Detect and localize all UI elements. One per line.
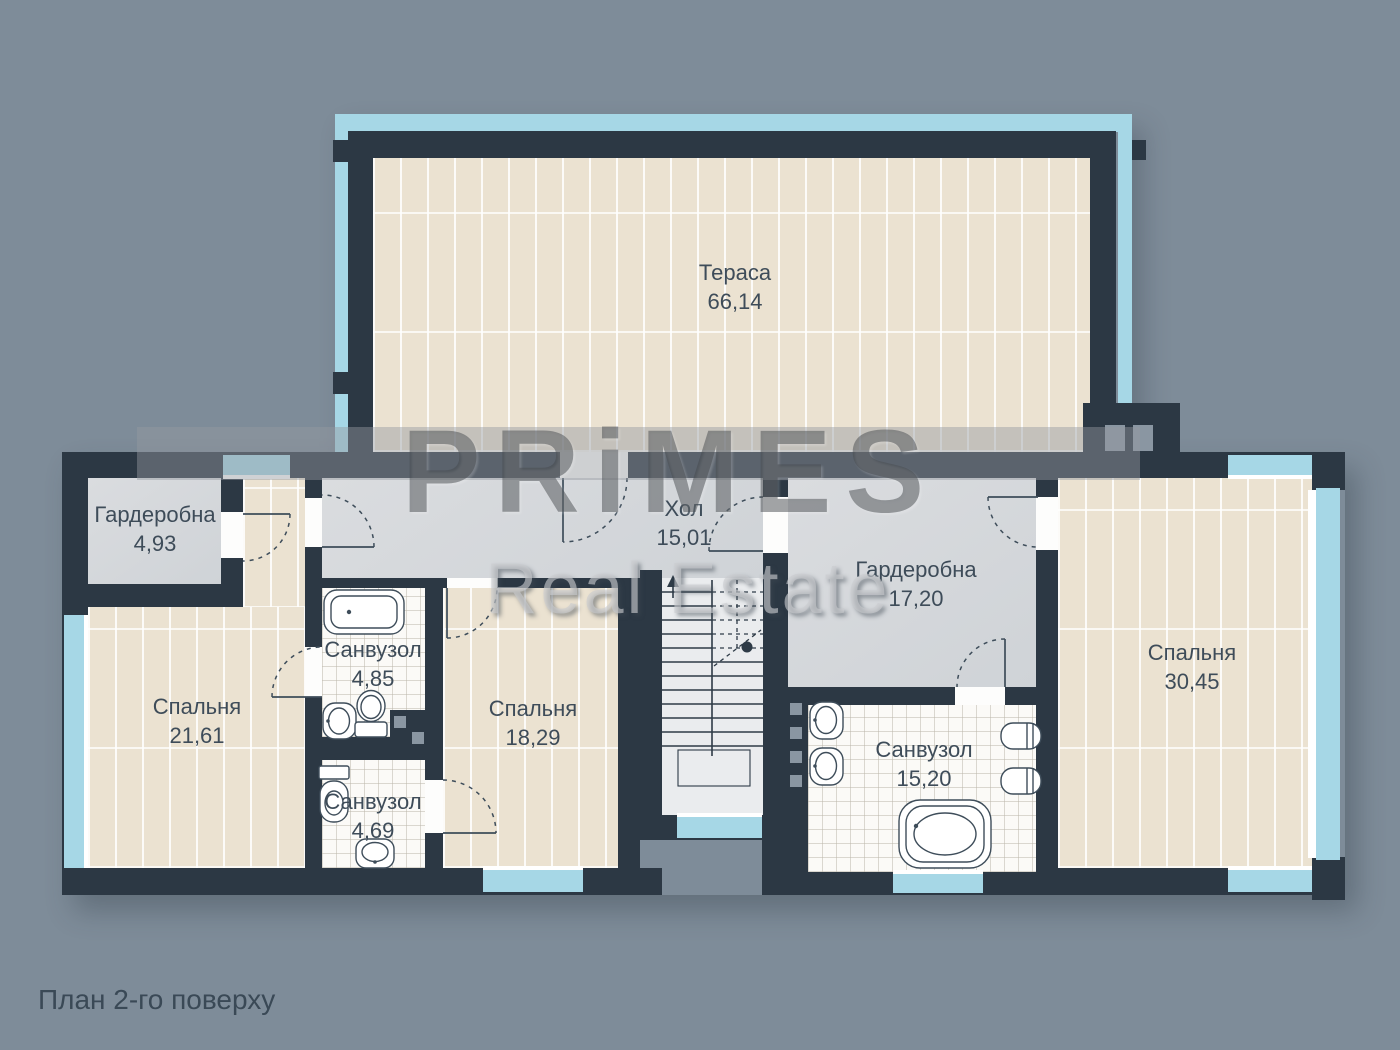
room-name: Спальня [1148, 638, 1236, 667]
room-area: 4,85 [324, 664, 421, 693]
room-name: Санвузол [324, 787, 421, 816]
stair-newel-dot [742, 642, 753, 653]
toilet [355, 691, 387, 738]
bathtub-small [324, 590, 404, 634]
room-area: 30,45 [1148, 667, 1236, 696]
bathtub-large [899, 800, 991, 868]
room-label-bath-top: Санвузол 4,85 [324, 635, 421, 693]
washbasin [810, 748, 843, 785]
room-label-bedroom-left: Спальня 21,61 [153, 692, 241, 750]
room-name: Тераса [699, 258, 771, 287]
room-area: 15,20 [875, 764, 972, 793]
plan-caption: План 2-го поверху [38, 984, 275, 1016]
room-area: 18,29 [489, 723, 577, 752]
watermark-logo-text: PRiMES [402, 404, 938, 540]
towel-radiator [1001, 768, 1041, 794]
room-label-terrace: Тераса 66,14 [699, 258, 771, 316]
room-area: 66,14 [699, 287, 771, 316]
towel-radiator [1001, 723, 1041, 749]
washbasin [323, 703, 356, 739]
room-label-wardrobe-small: Гардеробна 4,93 [94, 500, 215, 558]
room-name: Санвузол [875, 735, 972, 764]
washbasin [810, 702, 843, 739]
room-name: Санвузол [324, 635, 421, 664]
room-label-bath-bottom: Санвузол 4,69 [324, 787, 421, 845]
room-name: Гардеробна [94, 500, 215, 529]
room-label-bedroom-mid: Спальня 18,29 [489, 694, 577, 752]
room-area: 21,61 [153, 721, 241, 750]
room-label-bedroom-right: Спальня 30,45 [1148, 638, 1236, 696]
watermark-subtitle-text: Real Estate [485, 548, 890, 630]
room-name: Спальня [153, 692, 241, 721]
room-area: 4,93 [94, 529, 215, 558]
room-label-bath-big: Санвузол 15,20 [875, 735, 972, 793]
floor-plan-canvas: Тераса 66,14 Гардеробна 4,93 Спальня 21,… [0, 0, 1400, 1050]
room-name: Спальня [489, 694, 577, 723]
room-area: 4,69 [324, 816, 421, 845]
